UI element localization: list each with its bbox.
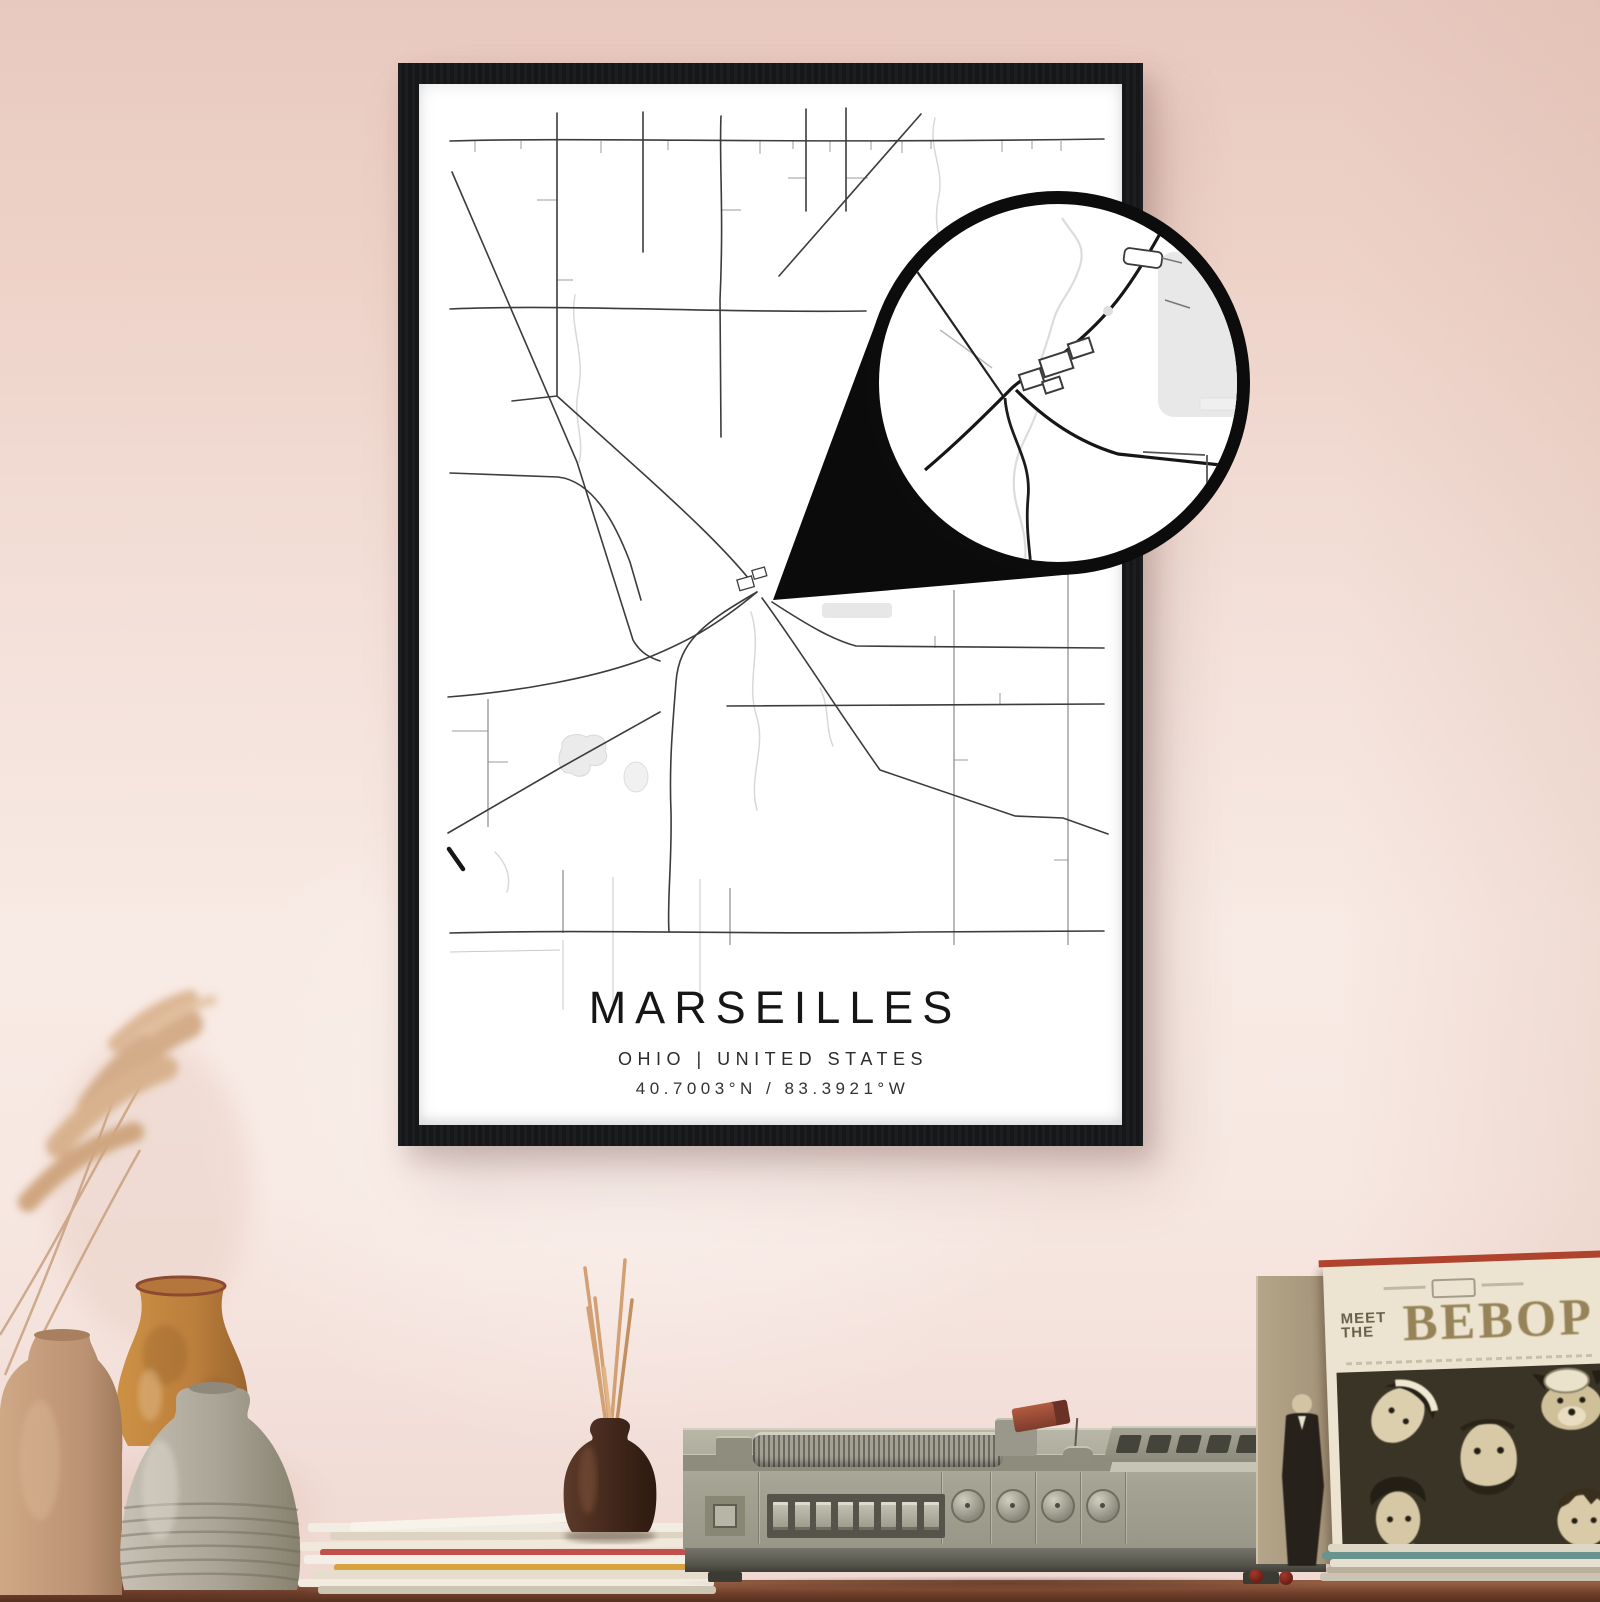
panel-seam: [1125, 1472, 1126, 1544]
face-ed: [1556, 1487, 1600, 1547]
power-button: [705, 1496, 745, 1536]
volume-knob: [951, 1489, 985, 1523]
tuning-knob: [1086, 1489, 1120, 1523]
preset-key: [924, 1502, 939, 1530]
poster-title: MARSEILLES: [419, 982, 1122, 1034]
record-player: [683, 1388, 1328, 1584]
cover-badge: [1544, 1368, 1589, 1393]
record-player-plinth: [685, 1548, 1326, 1572]
preset-button-row: [767, 1494, 945, 1538]
panel-seam: [1035, 1472, 1036, 1544]
preset-key: [881, 1502, 896, 1530]
panel-seam: [1080, 1472, 1081, 1544]
album-header-line: [1384, 1286, 1426, 1290]
red-plug: [1279, 1571, 1293, 1585]
face-faye: [1357, 1370, 1444, 1457]
tan-bottle-vase: [0, 1329, 122, 1595]
balance-knob: [1041, 1489, 1075, 1523]
album-pretitle-the: THE: [1341, 1325, 1387, 1341]
album-pretitle: MEET THE: [1340, 1311, 1387, 1341]
bold-road-dash: [449, 849, 463, 869]
preset-key: [838, 1502, 853, 1530]
preset-key: [859, 1502, 874, 1530]
album-cover-photo: [1337, 1363, 1600, 1556]
ceramic-vases: [0, 1260, 320, 1600]
control-slot: [1146, 1435, 1172, 1453]
panel-seam: [990, 1472, 991, 1544]
small-lake: [624, 762, 648, 792]
red-plug: [1249, 1569, 1263, 1583]
control-slot: [1176, 1435, 1202, 1453]
tone-knob: [996, 1489, 1030, 1523]
flat-records-stack: [1320, 1540, 1600, 1590]
deck-cylinder-knob: [1063, 1446, 1093, 1464]
album-header-line: [1481, 1282, 1523, 1286]
preset-key: [902, 1502, 917, 1530]
player-foot: [708, 1572, 742, 1582]
control-slot: [1116, 1435, 1142, 1453]
turntable-platter: [753, 1432, 1003, 1467]
deck-switch-block: [716, 1436, 752, 1464]
poster-text-block: MARSEILLES OHIO | UNITED STATES 40.7003°…: [419, 982, 1122, 1099]
poster-subtitle: OHIO | UNITED STATES: [419, 1049, 1122, 1070]
face-jet: [1459, 1420, 1518, 1495]
album-title: BEBOP: [1402, 1288, 1595, 1354]
poster-coordinates: 40.7003°N / 83.3921°W: [419, 1079, 1122, 1099]
album-credit-line: [1346, 1354, 1596, 1366]
reed-diffuser: [540, 1240, 680, 1600]
preset-key: [816, 1502, 831, 1530]
panel-seam: [758, 1472, 759, 1544]
map-zoom-callout: [700, 150, 1320, 650]
diffuser-bottle: [564, 1418, 657, 1532]
preset-key: [773, 1502, 788, 1530]
control-slot: [1206, 1435, 1232, 1453]
preset-key: [795, 1502, 810, 1530]
album-meet-the-bebop: MEET THE BEBOP: [1323, 1257, 1600, 1569]
